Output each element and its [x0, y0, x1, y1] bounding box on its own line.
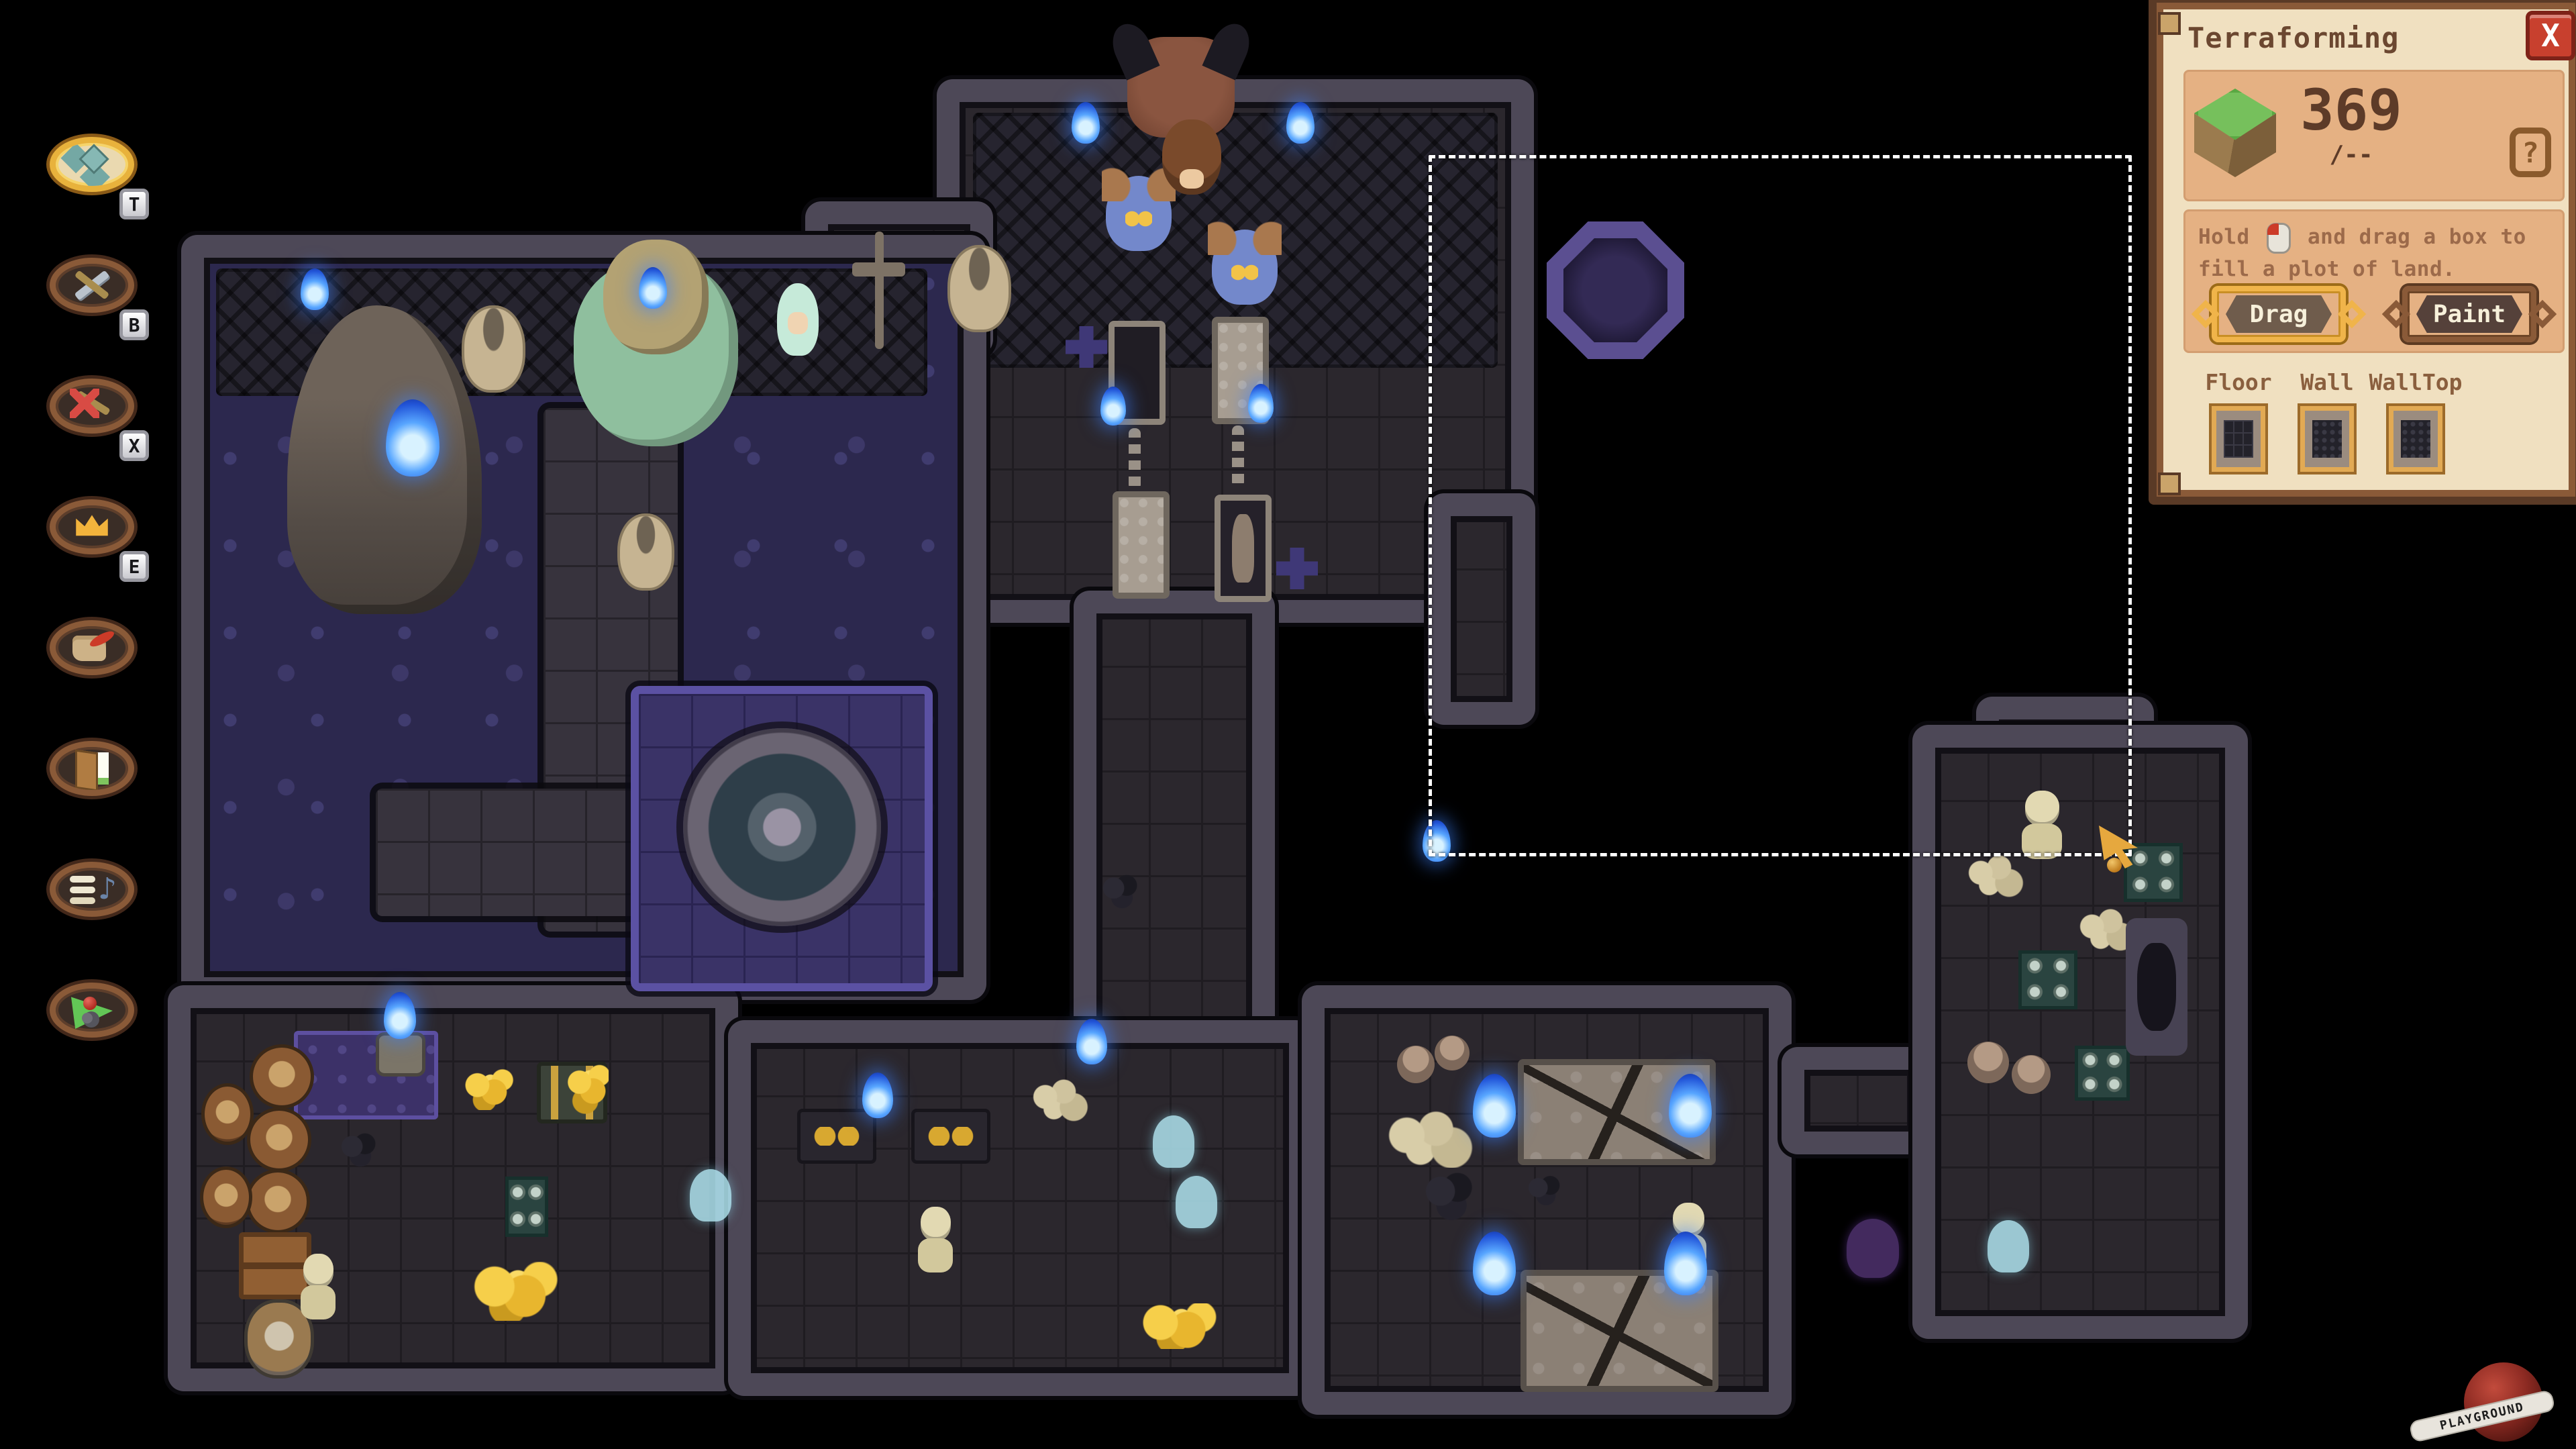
map-sprite-mushroom [2012, 1055, 2051, 1094]
map-sprite-ghost [1176, 1176, 1217, 1228]
floor-tile-swatch[interactable] [2212, 406, 2265, 472]
map-sprite-pot [617, 513, 674, 591]
map-sprite-hook [1232, 426, 1244, 487]
map-sprite-pot [947, 245, 1011, 332]
map-region-walk [376, 789, 664, 916]
game-screen: TBXE Terraforming X 369 /-- ? Hold and d… [0, 0, 2576, 1449]
map-sprite-spiketrap [505, 1177, 548, 1237]
map-sprite-ghost [1988, 1220, 2029, 1272]
map-sprite-pot [462, 305, 525, 393]
paint-mode-label: Paint [2416, 295, 2522, 333]
map-sprite-spiketrap [2124, 843, 2183, 902]
map-sprite-mushroom [1435, 1036, 1470, 1070]
map-sprite-fountain [683, 728, 881, 926]
map-sprite-mushroom [1967, 1042, 2009, 1083]
crown-icon [68, 508, 115, 546]
drag-mode-button[interactable]: Drag [2212, 286, 2346, 342]
floor-tile-icon [2224, 420, 2253, 458]
map-sprite-barrel [201, 1083, 254, 1145]
instructions-section: Hold and drag a box to fill a plot of la… [2183, 209, 2565, 353]
map-sprite-coal [1099, 871, 1141, 909]
map-sprite-coal [1525, 1173, 1563, 1205]
toolbar-terraform-button[interactable]: T [50, 137, 134, 192]
tile-slots: Floor Wall WallTop [2194, 369, 2460, 472]
map-sprite-candelabra [847, 232, 911, 349]
map-sprite-coal [338, 1130, 379, 1167]
terraform-selection-rect [1429, 155, 2132, 856]
map-sprite-wraith [1847, 1219, 1899, 1278]
playground-watermark: PLAYGROUND [2409, 1362, 2557, 1449]
mode-buttons: Drag Paint [2183, 286, 2565, 342]
wall-tile-swatch[interactable] [2300, 406, 2354, 472]
grass-block-icon [2194, 89, 2276, 177]
close-button[interactable]: X [2526, 11, 2575, 60]
resource-capacity: /-- [2329, 141, 2373, 168]
shortcut-badge-X: X [119, 430, 149, 461]
paint-mode-button[interactable]: Paint [2402, 286, 2536, 342]
resource-section: 369 /-- ? [2183, 70, 2565, 201]
map-sprite-imp [1106, 176, 1172, 251]
hammer-wrench-icon [68, 266, 115, 304]
drag-mode-label: Drag [2226, 295, 2332, 333]
map-sprite-graveslab [911, 1109, 990, 1164]
toolbar-terraform-frame [50, 137, 134, 192]
map-sprite-gold [466, 1262, 560, 1321]
resource-amount: 369 [2300, 79, 2402, 141]
map-sprite-barrel [200, 1166, 252, 1228]
toolbar-minigame-frame [50, 983, 134, 1038]
map-region-room [728, 1020, 1312, 1396]
shortcut-badge-B: B [119, 309, 149, 340]
map-sprite-mint [777, 283, 819, 356]
map-sprite-spiketrap [2018, 950, 2077, 1009]
map-sprite-hero [1162, 119, 1221, 195]
instruction-suffix: and drag a box to [2308, 225, 2526, 249]
scroll-quill-icon [68, 629, 115, 666]
map-sprite-skeleton [294, 1254, 342, 1319]
toolbar-demolish-button[interactable]: X [50, 379, 134, 434]
map-sprite-pit [2126, 918, 2187, 1056]
instruction-text-line1: Hold and drag a box to [2198, 221, 2550, 254]
toolbar-quests-frame [50, 620, 134, 675]
toolbar-jukebox-button[interactable] [50, 862, 134, 917]
map-sprite-gold [462, 1067, 514, 1110]
toolbar-door-frame [50, 741, 134, 796]
map-sprite-spiketrap [2075, 1046, 2130, 1101]
toolbar-minigame-button[interactable] [50, 983, 134, 1038]
map-region-room [1074, 591, 1275, 1047]
instruction-prefix: Hold [2198, 225, 2250, 249]
instruction-text-line2: fill a plot of land. [2198, 254, 2550, 285]
terraforming-panel: Terraforming X 369 /-- ? Hold and drag a… [2149, 0, 2576, 505]
map-sprite-gold [567, 1059, 609, 1114]
map-sprite-barrel [247, 1107, 311, 1172]
map-sprite-imp [1212, 230, 1278, 305]
map-sprite-barrel [250, 1044, 314, 1109]
toolbar-quests-button[interactable] [50, 620, 134, 675]
music-list-icon [68, 870, 115, 908]
toolbar-overlord-button[interactable]: E [50, 499, 134, 554]
floor-slot-label: Floor [2205, 369, 2271, 395]
map-sprite-mushroom [1397, 1046, 1435, 1083]
map-sprite-skeleton [911, 1207, 960, 1272]
toolbar-demolish-frame [50, 379, 134, 434]
mouse-cursor-ball [2107, 858, 2122, 872]
wall-slot-label: Wall [2300, 369, 2353, 395]
toolbar: TBXE [50, 137, 134, 1038]
walltop-tile-icon [2401, 420, 2430, 458]
map-sprite-bones [1380, 1109, 1477, 1168]
map-sprite-ghost [1153, 1115, 1194, 1168]
map-sprite-cryptlight [1113, 491, 1170, 599]
toolbar-overlord-frame [50, 499, 134, 554]
toolbar-jukebox-frame [50, 862, 134, 917]
map-sprite-gold [1135, 1303, 1219, 1349]
map-sprite-bones [1028, 1075, 1090, 1123]
floor-slot: Floor [2194, 369, 2283, 472]
terrain-blocks-icon [68, 146, 115, 183]
map-sprite-ghost [690, 1169, 731, 1221]
walltop-slot: WallTop [2371, 369, 2460, 472]
shortcut-badge-T: T [119, 189, 149, 219]
map-sprite-hook [1129, 428, 1141, 490]
hammer-x-icon [68, 387, 115, 425]
panel-title: Terraforming [2187, 21, 2399, 54]
toolbar-door-button[interactable] [50, 741, 134, 796]
toolbar-build-button[interactable]: B [50, 258, 134, 313]
map-sprite-graveslab [797, 1109, 876, 1164]
toolbar-build-frame [50, 258, 134, 313]
mouse-left-click-icon [2267, 223, 2291, 254]
wall-tile-icon [2312, 420, 2342, 458]
wall-slot: Wall [2283, 369, 2371, 472]
help-icon[interactable]: ? [2510, 128, 2551, 177]
map-sprite-barrel [246, 1169, 310, 1234]
walltop-slot-label: WallTop [2369, 369, 2462, 395]
joystick-icon [68, 991, 115, 1029]
map-sprite-cryptmummy [1215, 495, 1272, 602]
map-sprite-coal [1421, 1166, 1476, 1221]
open-door-icon [68, 750, 115, 787]
map-sprite-bones [1963, 851, 2025, 899]
walltop-tile-swatch[interactable] [2389, 406, 2442, 472]
shortcut-badge-E: E [119, 551, 149, 582]
